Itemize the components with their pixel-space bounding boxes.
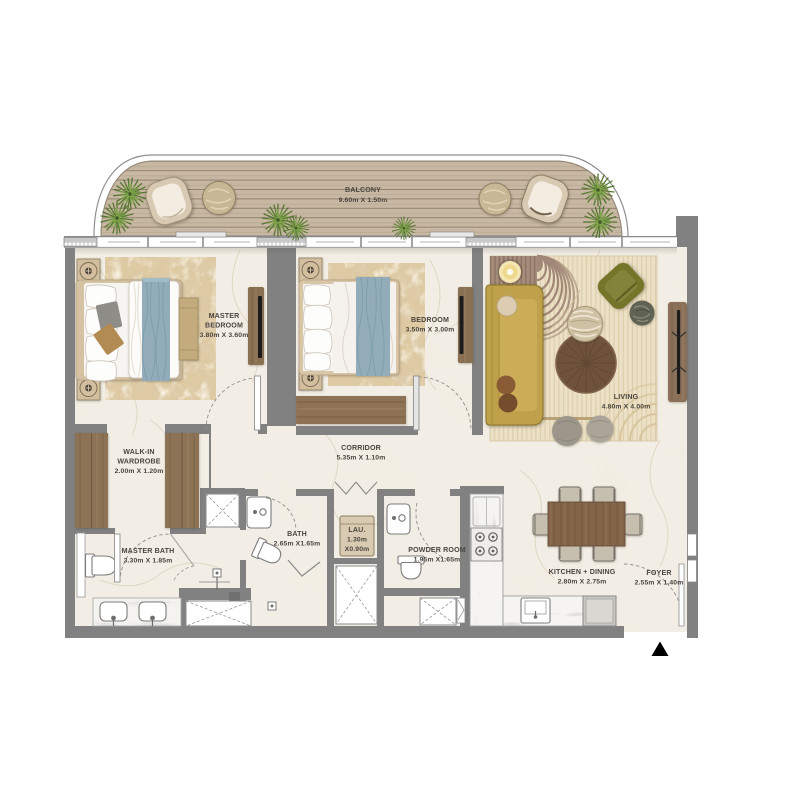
svg-text:4.80m X 4.00m: 4.80m X 4.00m (602, 404, 651, 411)
svg-text:5.35m X 1.10m: 5.35m X 1.10m (337, 455, 386, 462)
svg-text:X0.90m: X0.90m (345, 546, 370, 553)
svg-text:2.00m X 1.20m: 2.00m X 1.20m (115, 468, 164, 475)
svg-text:POWDER ROOM: POWDER ROOM (408, 546, 466, 554)
svg-text:MASTER BATH: MASTER BATH (122, 547, 175, 555)
svg-text:BATH: BATH (287, 530, 307, 538)
svg-text:2.65m X1.65m: 2.65m X1.65m (274, 541, 321, 548)
svg-text:BEDROOM: BEDROOM (205, 322, 243, 330)
svg-text:9.60m X 1.50m: 9.60m X 1.50m (339, 197, 388, 204)
svg-text:3.30m X 1.85m: 3.30m X 1.85m (124, 558, 173, 565)
svg-text:WALK-IN: WALK-IN (123, 448, 154, 456)
svg-text:LAU.: LAU. (348, 526, 365, 534)
svg-text:1.95m X1.65m: 1.95m X1.65m (414, 557, 461, 564)
svg-text:CORRIDOR: CORRIDOR (341, 444, 381, 452)
svg-text:KITCHEN + DINING: KITCHEN + DINING (549, 568, 616, 576)
svg-text:3.50m X 3.00m: 3.50m X 3.00m (406, 327, 455, 334)
svg-text:BEDROOM: BEDROOM (411, 316, 449, 324)
svg-text:FOYER: FOYER (646, 569, 671, 577)
svg-text:MASTER: MASTER (209, 312, 240, 320)
svg-text:LIVING: LIVING (614, 393, 639, 401)
svg-text:WARDROBE: WARDROBE (117, 458, 160, 466)
svg-text:BALCONY: BALCONY (345, 186, 381, 194)
svg-text:2.80m X 2.75m: 2.80m X 2.75m (558, 579, 607, 586)
svg-text:3.80m X 3.60m: 3.80m X 3.60m (200, 332, 249, 339)
svg-text:1.30m: 1.30m (347, 537, 367, 544)
svg-text:2.55m X 1.40m: 2.55m X 1.40m (635, 580, 684, 587)
